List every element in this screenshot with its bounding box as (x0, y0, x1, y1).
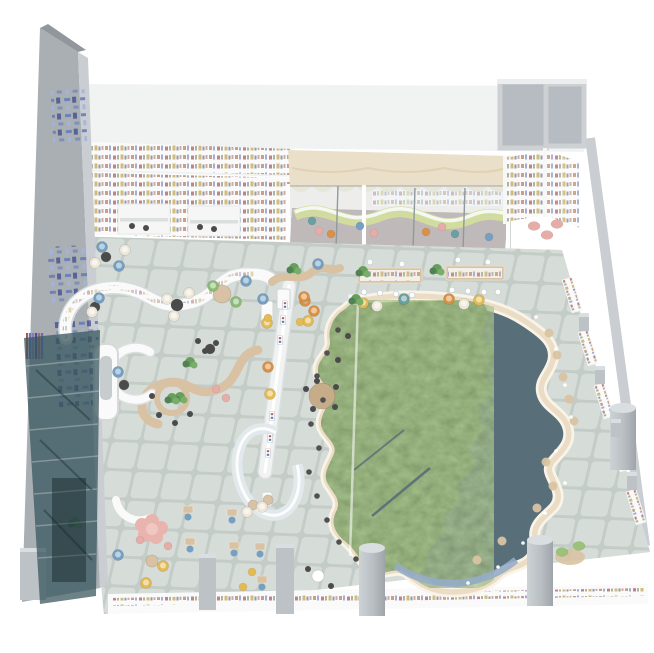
glass-post (362, 185, 366, 250)
pond-edge-stool (324, 517, 330, 523)
carrel-desk (185, 538, 195, 545)
armchair (399, 294, 410, 305)
table (101, 252, 111, 262)
dark-chair (202, 348, 208, 354)
spine-display-niche (281, 316, 286, 325)
stool (361, 289, 367, 295)
carrel-desk (229, 542, 239, 549)
stool (465, 288, 471, 294)
column-top (627, 472, 637, 476)
armchair-seat (171, 313, 177, 319)
niche-frame (270, 412, 275, 421)
column-shaft (527, 540, 553, 606)
armchair-seat (164, 296, 170, 302)
beanbag (556, 548, 568, 557)
armchair-seat (99, 244, 105, 250)
stool (409, 292, 415, 298)
armchair-seat (210, 283, 216, 289)
plant-leaf (349, 298, 356, 305)
column-top (527, 535, 553, 545)
plant-leaf (430, 268, 437, 275)
niche-item (269, 439, 271, 441)
spine-display-niche (268, 434, 273, 443)
carrel-chair (187, 546, 194, 553)
armchair-seat (476, 297, 482, 303)
pouf (370, 229, 378, 237)
stair-core (52, 478, 86, 582)
pond-edge-stool (314, 373, 320, 379)
dark-chair (335, 357, 341, 363)
pouf (222, 394, 230, 402)
pond-edge-stool (306, 469, 312, 475)
armchair (265, 389, 276, 400)
niche-frame (268, 434, 273, 443)
table (146, 555, 158, 567)
carrel-desk (255, 543, 265, 550)
armchair-seat (401, 296, 407, 302)
beanbag (528, 222, 540, 231)
dark-chair (345, 333, 351, 339)
plant-leaf (287, 267, 294, 274)
pond-edge-stool (308, 421, 314, 427)
edge-light (563, 481, 567, 485)
niche-item (284, 306, 286, 308)
armchair-seat (116, 263, 122, 269)
column-shaft (199, 554, 216, 610)
plant-leaf (165, 397, 172, 404)
pouf (308, 217, 316, 225)
storage-room (546, 84, 584, 146)
nook-pilaster (503, 156, 507, 224)
spine-display-niche (283, 301, 288, 310)
pouf (248, 568, 256, 576)
armchair (258, 294, 269, 305)
niche-item (282, 321, 284, 323)
column-box (627, 472, 637, 490)
armchair-seat (265, 364, 271, 370)
beanbag (551, 220, 563, 229)
armchair (97, 242, 108, 253)
floor-cushion (545, 329, 554, 338)
column-top (276, 544, 294, 548)
armchair (299, 292, 310, 303)
stool (393, 291, 399, 297)
alcove-counter (190, 220, 238, 224)
niche-item (271, 413, 273, 415)
armchair (162, 294, 173, 305)
floor-cushion (498, 537, 507, 546)
armchair (184, 288, 195, 299)
pouf (438, 223, 446, 231)
edge-light (554, 449, 558, 453)
table (309, 383, 335, 409)
render-canvas (0, 0, 654, 653)
armchair-seat (233, 299, 239, 305)
column-top (610, 403, 636, 413)
armchair (474, 295, 485, 306)
column-box (276, 544, 294, 614)
dark-chair (129, 223, 135, 229)
dark-chair (149, 393, 155, 399)
armchair (120, 245, 131, 256)
armchair (309, 306, 320, 317)
niche-frame (278, 336, 283, 345)
carrel-chair (229, 517, 236, 524)
armchair (87, 307, 98, 318)
dark-chair (172, 420, 178, 426)
plant-leaf (357, 299, 364, 306)
dark-chair (333, 384, 339, 390)
pouf (136, 536, 144, 544)
stool (495, 289, 501, 295)
nook-shelf-left (505, 150, 545, 222)
armchair (114, 261, 125, 272)
pond-edge-stool (314, 493, 320, 499)
plant-leaf (438, 269, 445, 276)
column-shaft (359, 548, 385, 616)
plant-leaf (356, 270, 363, 277)
floor-cushion (473, 556, 482, 565)
dark-chair (310, 406, 316, 412)
armchair-seat (305, 318, 311, 324)
niche-item (279, 341, 281, 343)
beanbag (541, 231, 553, 240)
armchair-seat (315, 261, 321, 267)
armchair-seat (243, 278, 249, 284)
stool (485, 259, 491, 265)
back-bookshelf-wall (62, 140, 292, 240)
mural-art (51, 89, 88, 143)
edge-light (569, 415, 573, 419)
stool (377, 290, 383, 296)
armchair (257, 502, 268, 513)
edge-light (543, 511, 547, 515)
pouf (296, 318, 304, 326)
armchair-seat (115, 369, 121, 375)
edge-light (563, 383, 567, 387)
column-top (359, 543, 385, 553)
armchair (313, 259, 324, 270)
pouf (327, 230, 335, 238)
plant-leaf (295, 268, 302, 275)
plant-leaf (364, 271, 371, 278)
floor-cushion (549, 482, 558, 491)
column-shaft (610, 408, 636, 470)
column-top (199, 554, 216, 558)
armchair (90, 258, 101, 269)
armchair (208, 281, 219, 292)
armchair (141, 578, 152, 589)
storage-room (500, 82, 546, 148)
armchair (372, 301, 383, 312)
stool (399, 261, 405, 267)
column-box (595, 366, 605, 384)
armchair-seat (244, 509, 250, 515)
stool (367, 259, 373, 265)
pouf (264, 314, 272, 322)
niche-item (279, 337, 281, 339)
armchair-seat (115, 552, 121, 558)
pond-edge-stool (336, 539, 342, 545)
plant-leaf (191, 362, 198, 369)
dark-chair (195, 338, 201, 344)
armchair (169, 311, 180, 322)
dark-chair (187, 411, 193, 417)
armchair (113, 367, 124, 378)
dark-chair (156, 412, 162, 418)
stool (481, 289, 487, 295)
niche-item (282, 317, 284, 319)
spine-display-niche (270, 412, 275, 421)
armchair-seat (311, 308, 317, 314)
carrel-chair (257, 551, 264, 558)
armchair (459, 299, 470, 310)
floor-cushion (559, 373, 568, 382)
pouf (422, 228, 430, 236)
armchair-seat (461, 301, 467, 307)
armchair-seat (267, 391, 273, 397)
library-render-stage (0, 0, 654, 653)
niche-item (271, 417, 273, 419)
alcove-counter (120, 218, 168, 222)
dark-chair (197, 224, 203, 230)
carrel-chair (259, 584, 266, 591)
armchair-seat (301, 294, 307, 300)
pouf (485, 233, 493, 241)
carrel-chair (231, 550, 238, 557)
beanbag (573, 542, 585, 551)
column-box (199, 554, 216, 610)
armchair-seat (89, 309, 95, 315)
carrel-chair (185, 514, 192, 521)
pouf (356, 222, 364, 230)
armchair (158, 561, 169, 572)
edge-light (466, 581, 470, 585)
armchair (113, 550, 124, 561)
armchair (263, 362, 274, 373)
carrel-desk (227, 509, 237, 516)
niche-item (267, 454, 269, 456)
armchair-seat (122, 247, 128, 253)
table (119, 380, 129, 390)
dark-chair (305, 566, 311, 572)
pond-edge-stool (320, 397, 326, 403)
pouf (164, 542, 172, 550)
dark-chair (211, 226, 217, 232)
niche-frame (266, 449, 271, 458)
floor-cushion (542, 458, 551, 467)
armchair-seat (259, 504, 265, 510)
armchair-seat (446, 296, 452, 302)
nook-shelf-right (545, 150, 580, 228)
floor-cushion (553, 351, 562, 360)
pouf (315, 227, 323, 235)
pond-edge-stool (353, 556, 359, 562)
armchair-seat (143, 580, 149, 586)
column-top (611, 419, 621, 423)
armchair (241, 276, 252, 287)
plant-leaf (173, 398, 180, 405)
niche-frame (283, 301, 288, 310)
column-shaft (276, 544, 294, 614)
pond-edge-stool (316, 445, 322, 451)
armchair (231, 297, 242, 308)
pouf (212, 385, 220, 393)
edge-light (534, 315, 538, 319)
pond-edge-stool (335, 327, 341, 333)
glass-front (288, 186, 510, 250)
table (171, 299, 183, 311)
column-top (595, 366, 605, 370)
pouf (451, 230, 459, 238)
armchair-seat (92, 260, 98, 266)
dark-chair (213, 340, 219, 346)
table (312, 570, 324, 582)
armchair (94, 293, 105, 304)
column-cylinder (527, 535, 553, 606)
niche-item (269, 435, 271, 437)
column-cylinder (359, 543, 385, 616)
armchair-seat (374, 303, 380, 309)
dark-chair (303, 386, 309, 392)
edge-light (554, 347, 558, 351)
column-top (579, 313, 589, 317)
edge-light (521, 541, 525, 545)
plant-leaf (181, 397, 188, 404)
stool (455, 257, 461, 263)
column-box (611, 419, 621, 437)
spine-display-niche (266, 449, 271, 458)
storage-rooms (497, 79, 587, 148)
nook-pilaster (543, 148, 547, 217)
carrel-desk (183, 506, 193, 513)
dark-chair (143, 225, 149, 231)
armchair-seat (186, 290, 192, 296)
floor-cushion (533, 504, 542, 513)
armchair-seat (260, 296, 266, 302)
glass-post (286, 184, 290, 250)
bookshelf-face (62, 172, 292, 240)
niche-frame (281, 316, 286, 325)
stool (449, 287, 455, 293)
room-wall-top (497, 79, 587, 84)
pond-edge-stool (324, 350, 330, 356)
dark-chair (328, 583, 334, 589)
plant-leaf (183, 361, 190, 368)
carrel-desk (257, 576, 267, 583)
spine-display-niche (278, 336, 283, 345)
niche-item (267, 450, 269, 452)
armchair-seat (160, 563, 166, 569)
niche-item (284, 302, 286, 304)
armchair-seat (96, 295, 102, 301)
armchair (242, 507, 253, 518)
pouf (239, 583, 247, 591)
dark-chair (332, 404, 338, 410)
dark-chair (314, 378, 320, 384)
edge-light (496, 565, 500, 569)
column-box (579, 313, 589, 331)
armchair (444, 294, 455, 305)
floor-cushion (565, 395, 574, 404)
